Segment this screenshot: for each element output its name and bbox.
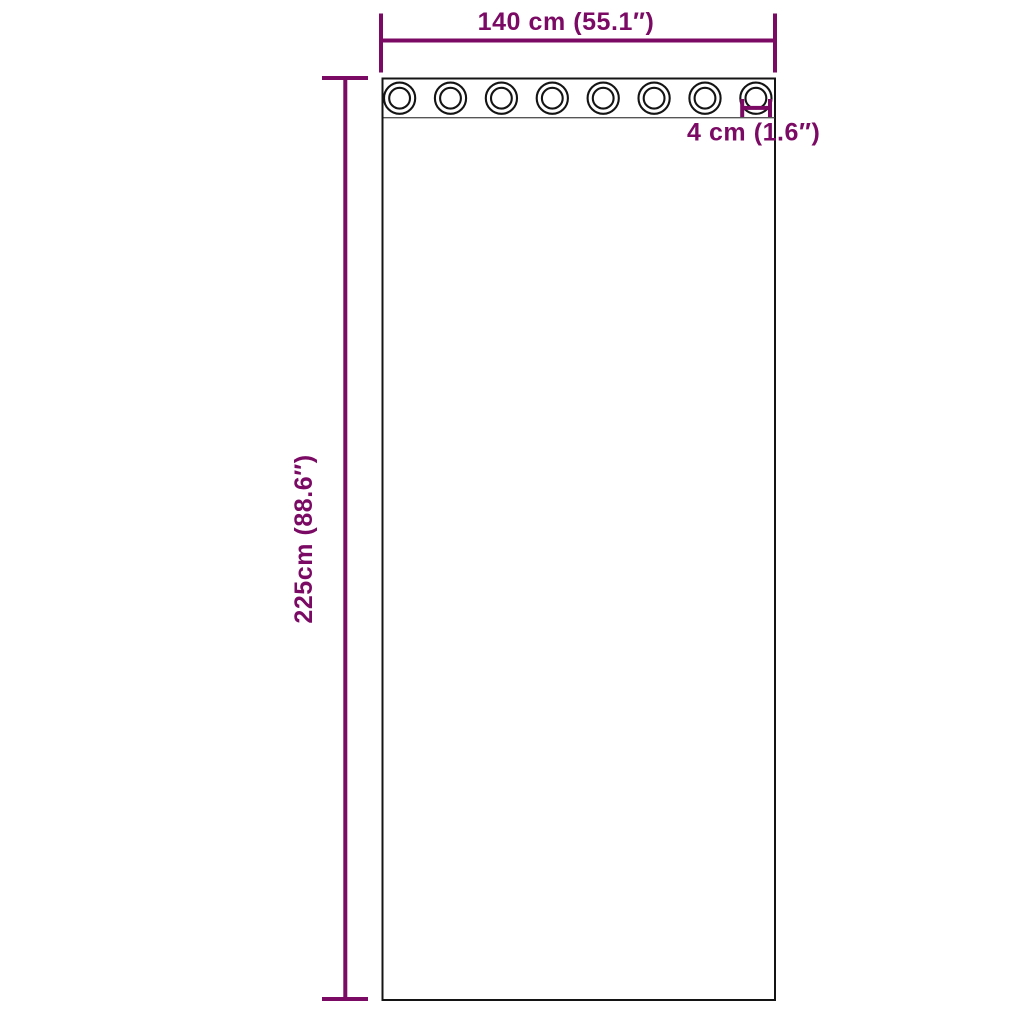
svg-text:4 cm (1.6″): 4 cm (1.6″): [687, 119, 820, 147]
svg-text:225cm (88.6″): 225cm (88.6″): [290, 454, 318, 623]
svg-text:140 cm (55.1″): 140 cm (55.1″): [478, 8, 655, 36]
